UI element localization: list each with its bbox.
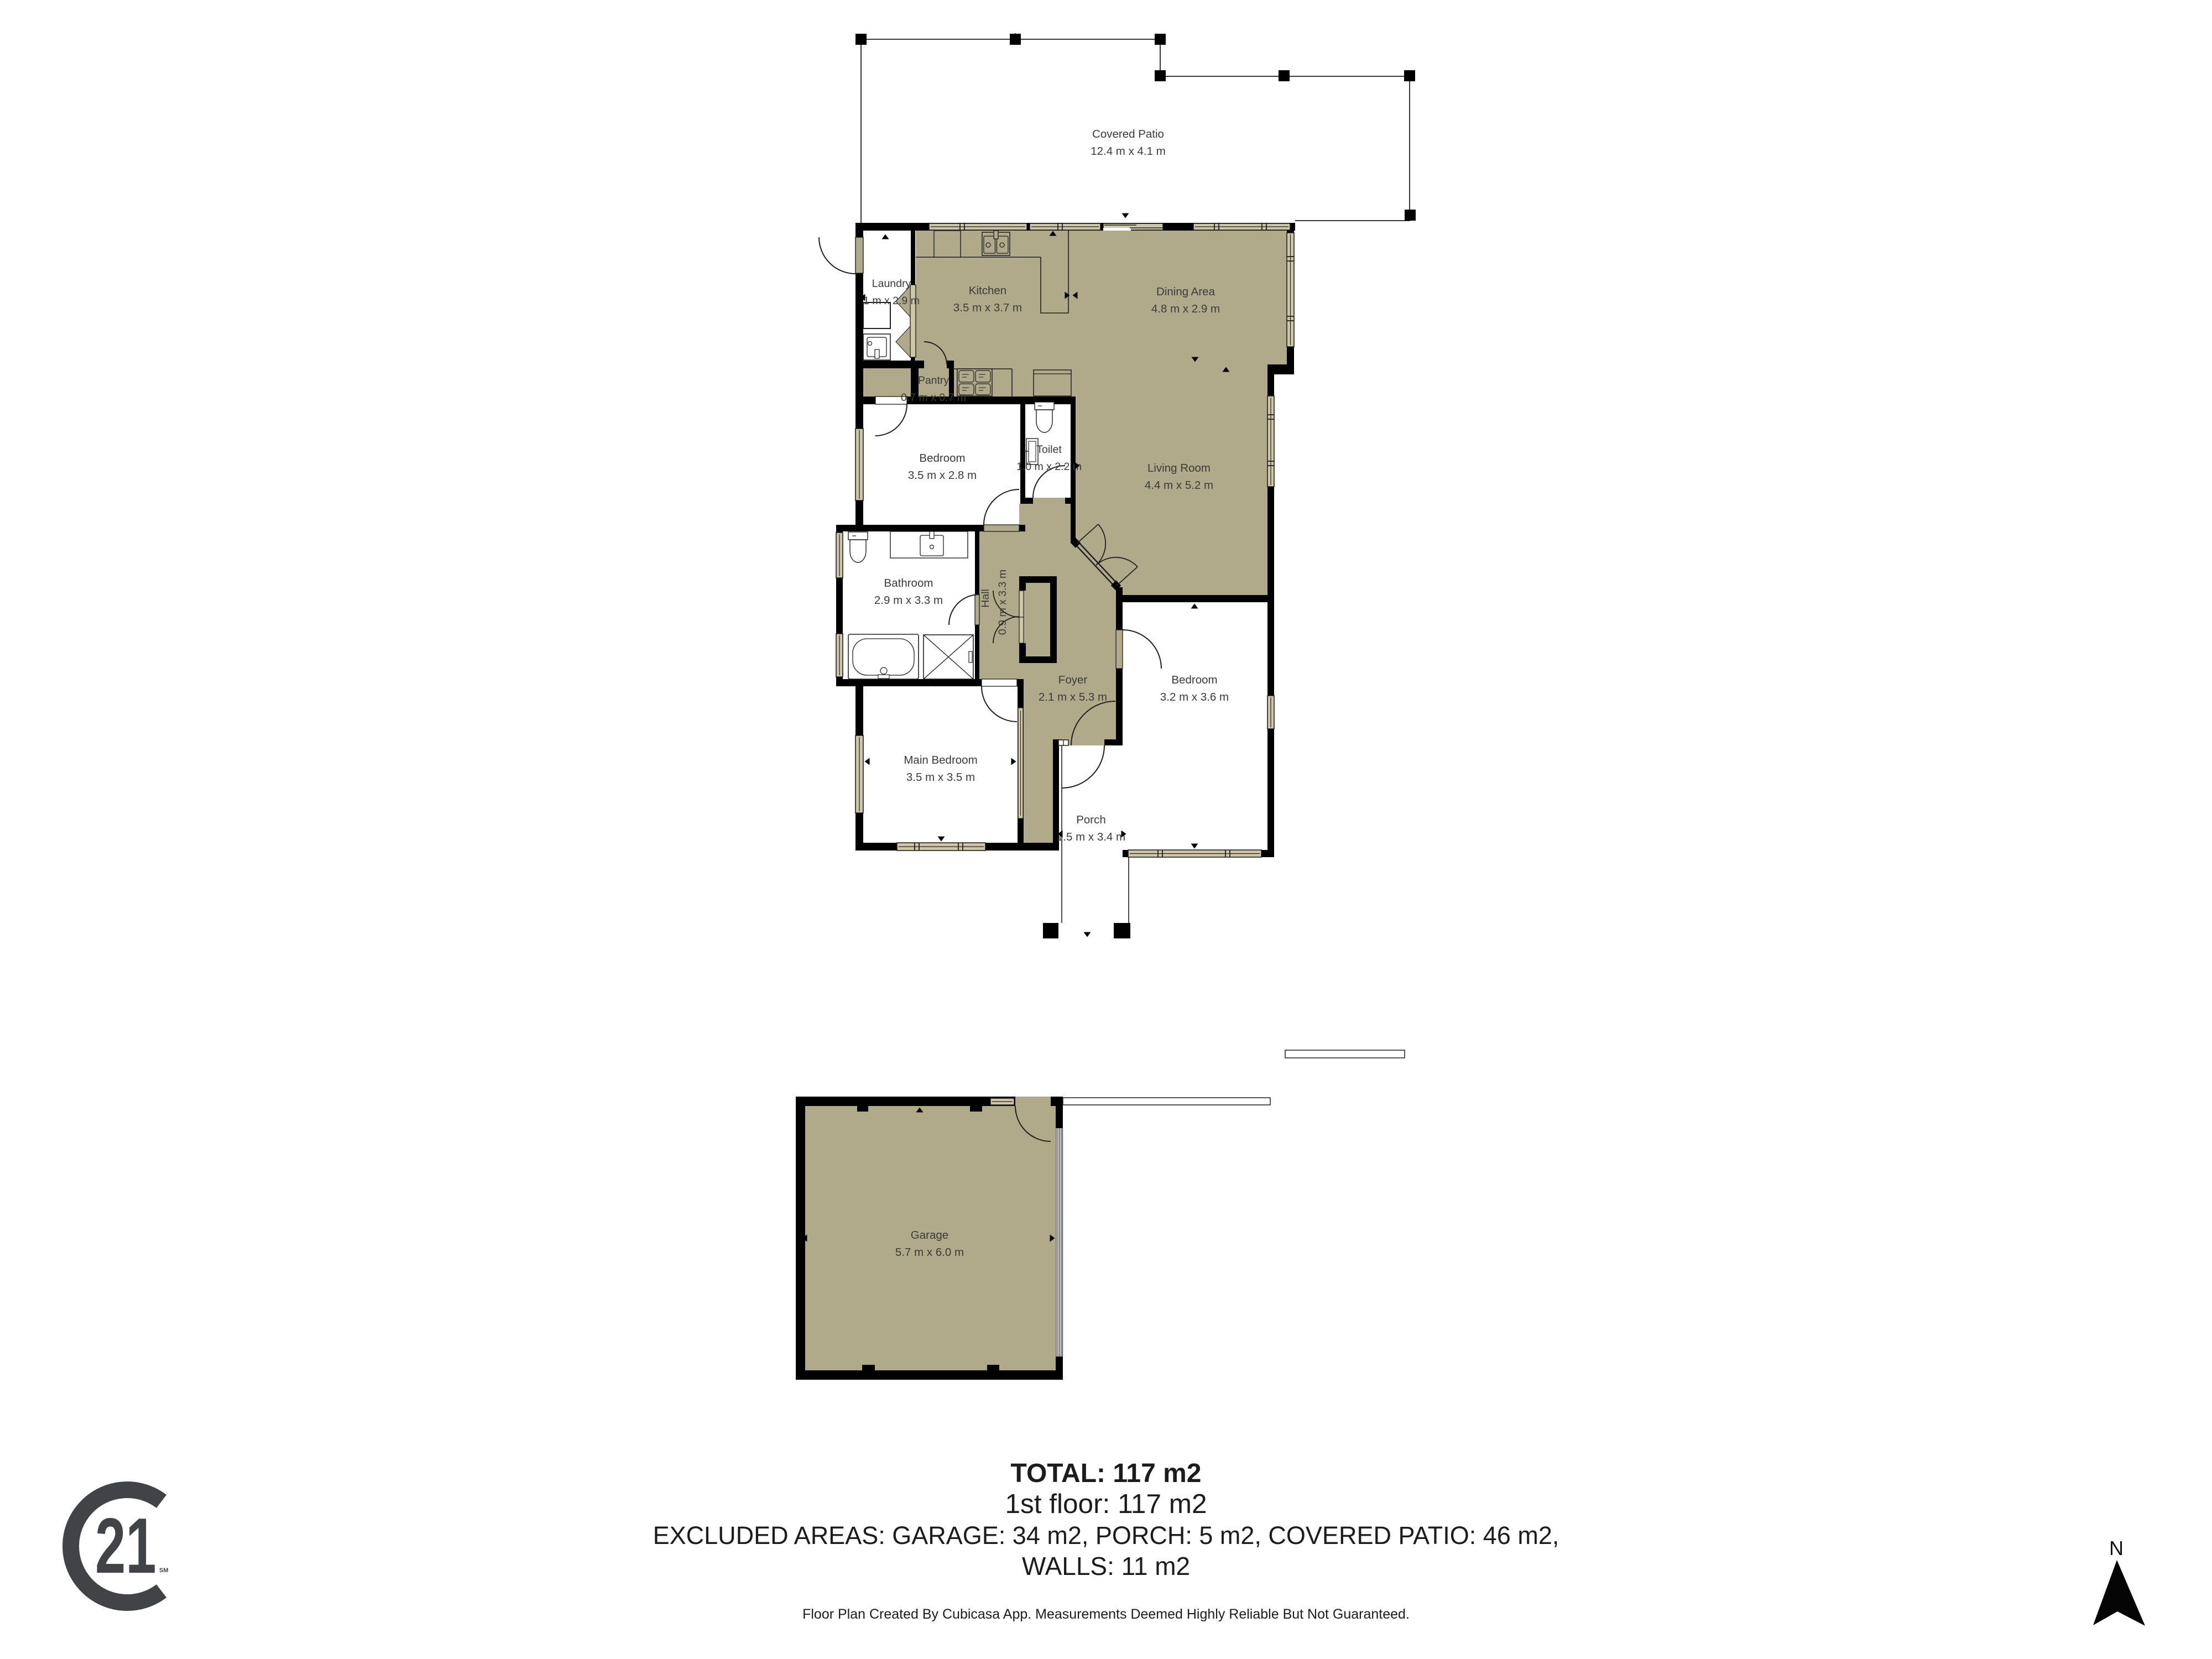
svg-text:Laundry: Laundry (872, 278, 911, 290)
svg-text:3.2 m x 3.6 m: 3.2 m x 3.6 m (1160, 691, 1229, 703)
svg-text:0.7 m x 0.7 m: 0.7 m x 0.7 m (901, 392, 966, 404)
svg-text:Hall: Hall (979, 589, 992, 608)
svg-text:TOTAL: 117 m2: TOTAL: 117 m2 (1011, 1459, 1202, 1488)
svg-text:Toilet: Toilet (1036, 444, 1062, 456)
svg-text:Dining Area: Dining Area (1156, 285, 1215, 298)
svg-text:EXCLUDED AREAS: GARAGE: 34 m2,: EXCLUDED AREAS: GARAGE: 34 m2, PORCH: 5 … (653, 1521, 1559, 1550)
svg-text:WALLS: 11 m2: WALLS: 11 m2 (1022, 1552, 1190, 1580)
svg-text:Bedroom: Bedroom (919, 452, 965, 465)
svg-text:Foyer: Foyer (1058, 674, 1088, 686)
svg-text:1.0 m x 2.2 m: 1.0 m x 2.2 m (1016, 461, 1082, 473)
svg-text:1.5 m x 3.4 m: 1.5 m x 3.4 m (1057, 831, 1125, 843)
svg-text:5.7 m x 6.0 m: 5.7 m x 6.0 m (895, 1246, 964, 1259)
svg-text:Garage: Garage (911, 1229, 948, 1241)
svg-text:2.9 m x 3.3 m: 2.9 m x 3.3 m (874, 594, 943, 607)
svg-text:2.1 m x 5.3 m: 2.1 m x 5.3 m (1039, 691, 1107, 703)
svg-text:4.8 m x 2.9 m: 4.8 m x 2.9 m (1151, 302, 1220, 315)
svg-text:Kitchen: Kitchen (969, 284, 1006, 297)
svg-text:3.5 m x 2.8 m: 3.5 m x 2.8 m (908, 469, 977, 482)
svg-text:3.5 m x 3.7 m: 3.5 m x 3.7 m (953, 301, 1022, 314)
svg-text:Floor Plan Created By Cubicasa: Floor Plan Created By Cubicasa App. Meas… (802, 1606, 1410, 1622)
svg-text:21: 21 (95, 1501, 156, 1589)
svg-text:1 m x 2.9 m: 1 m x 2.9 m (863, 295, 920, 307)
svg-text:SM: SM (159, 1567, 169, 1574)
svg-text:Pantry: Pantry (918, 374, 950, 387)
svg-text:3.5 m x 3.5 m: 3.5 m x 3.5 m (906, 771, 975, 784)
svg-text:12.4 m x 4.1 m: 12.4 m x 4.1 m (1091, 145, 1166, 158)
svg-text:Bathroom: Bathroom (884, 577, 933, 589)
svg-text:Bedroom: Bedroom (1171, 674, 1217, 686)
svg-text:N: N (2109, 1537, 2124, 1559)
svg-text:Covered Patio: Covered Patio (1092, 128, 1164, 140)
svg-text:4.4 m x 5.2 m: 4.4 m x 5.2 m (1145, 479, 1213, 492)
svg-text:Porch: Porch (1076, 813, 1106, 826)
svg-text:Living Room: Living Room (1147, 462, 1211, 474)
svg-text:Main Bedroom: Main Bedroom (904, 754, 977, 766)
svg-text:0.9 m x 3.3 m: 0.9 m x 3.3 m (997, 570, 1009, 635)
svg-text:1st floor: 117 m2: 1st floor: 117 m2 (1005, 1489, 1207, 1519)
